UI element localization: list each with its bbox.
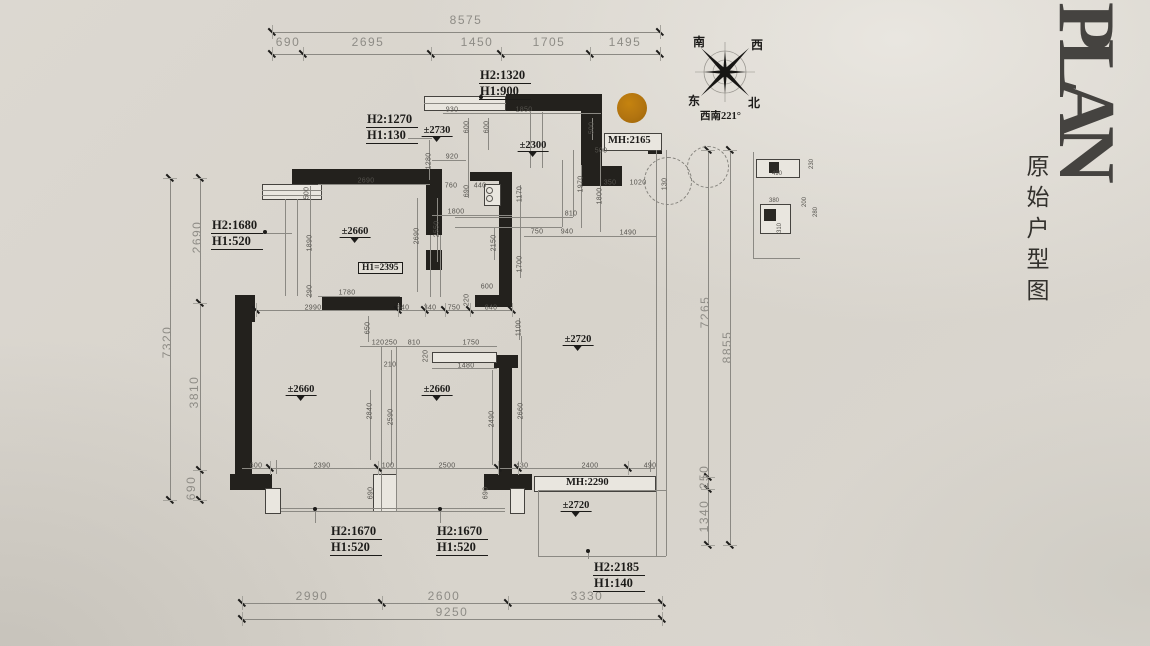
dimension-line (272, 54, 660, 55)
dimension-label: 760 (445, 183, 458, 190)
window-height-label: H2:1270H1:130 (366, 112, 418, 144)
dimension-line (272, 32, 660, 33)
leader-dot (438, 507, 442, 511)
floorplan-canvas: 8575690269514501705149526903810690732072… (0, 0, 1150, 646)
dimension-extension (242, 596, 243, 610)
height-label-h2: H2:1680 (211, 218, 263, 234)
level-mark-text: ±2720 (561, 500, 592, 512)
detail-dimension-label: 280 (813, 207, 819, 217)
dimension-label: 1970 (578, 176, 585, 193)
plan-line (562, 160, 563, 227)
level-mark-text: ±2660 (286, 384, 317, 396)
level-mark: ±2720 (561, 500, 592, 517)
detail-box-icon (764, 209, 776, 221)
dimension-extension (662, 612, 663, 626)
dimension-label: 2150 (491, 235, 498, 252)
door-height-label: MH:2290 (566, 477, 609, 488)
fixture-circle (486, 187, 493, 194)
level-triangle-icon (572, 512, 580, 517)
dimension-extension (628, 461, 629, 475)
detail-dimension-label: 490 (772, 171, 782, 177)
plan-line (521, 336, 522, 462)
level-mark: ±2660 (286, 384, 317, 401)
detail-dimension-label: 200 (802, 197, 808, 207)
dimension-extension (163, 178, 177, 179)
dimension-label: 1890 (307, 235, 314, 252)
dimension-label: 440 (474, 183, 487, 190)
dimension-label: 1100 (516, 320, 523, 336)
dimension-label: 220 (423, 350, 430, 363)
level-mark: ±2730 (422, 125, 453, 142)
dimension-extension (723, 545, 737, 546)
dimension-label: 1340 (697, 500, 711, 533)
level-triangle-icon (297, 396, 305, 401)
dimension-label: 1750 (463, 340, 480, 347)
dimension-label: 500 (589, 122, 596, 135)
dimension-line (242, 619, 662, 620)
dimension-label: 2990 (305, 305, 322, 312)
compass-label-east: 东 (688, 92, 700, 109)
dimension-label: 920 (446, 154, 459, 161)
dimension-label: 600 (484, 121, 491, 134)
window-height-label: H2:2185H1:140 (593, 560, 645, 592)
dimension-label: 7320 (160, 326, 174, 359)
dimension-label: 810 (408, 340, 421, 347)
dimension-label: 1280 (426, 153, 433, 170)
dimension-label: 690 (184, 476, 198, 501)
dimension-label: 2600 (428, 589, 461, 603)
dimension-label: 2550 (434, 221, 441, 238)
thin-wall-lines (430, 235, 441, 297)
detail-dimension-label: 310 (777, 223, 783, 233)
height-label-h1: H1:130 (366, 128, 418, 144)
dimension-label: 2490 (489, 411, 496, 428)
height-label-h1: H1:520 (211, 234, 263, 250)
dimension-label: 2695 (352, 35, 385, 49)
leader-dot (313, 507, 317, 511)
dimension-label: 1480 (458, 363, 475, 370)
door-swing-dashed (687, 146, 729, 188)
plan-line (538, 490, 539, 556)
dimension-extension (193, 470, 207, 471)
dimension-label: 600 (250, 463, 263, 470)
dimension-label: 2390 (314, 463, 331, 470)
dimension-label: 690 (276, 35, 301, 49)
level-triangle-icon (529, 152, 537, 157)
dimension-label: 600 (464, 121, 471, 134)
level-triangle-icon (433, 396, 441, 401)
dimension-extension (660, 25, 661, 39)
plan-line (262, 190, 322, 191)
plan-line (424, 103, 506, 104)
plan-line (581, 165, 582, 228)
dimension-extension (256, 303, 257, 317)
plan-line (262, 195, 322, 196)
window-height-label: H2:1670H1:520 (330, 524, 382, 556)
dimension-line (256, 310, 512, 311)
dimension-extension (303, 47, 304, 61)
window-height-label: H2:1680H1:520 (211, 218, 263, 250)
plan-line (753, 258, 800, 259)
dimension-extension (378, 461, 379, 475)
dimension-extension (512, 303, 513, 317)
dimension-label: 1490 (620, 230, 637, 237)
plan-line (538, 556, 666, 557)
wall-segment (499, 355, 512, 475)
leader-dot (263, 230, 267, 234)
dimension-label: 840 (397, 305, 410, 312)
level-mark: ±2720 (563, 334, 594, 351)
dimension-label: 500 (304, 187, 311, 200)
dimension-label: 100 (382, 463, 395, 470)
dimension-extension (445, 303, 446, 317)
dimension-label: 690 (483, 487, 490, 500)
dimension-label: 2840 (367, 403, 374, 420)
dimension-label: 1020 (630, 180, 647, 187)
height-label-h2: H2:2185 (593, 560, 645, 576)
dimension-label: 1705 (533, 35, 566, 49)
dimension-extension (590, 47, 591, 61)
dimension-label: 2590 (388, 409, 395, 426)
dimension-label: 250 (385, 340, 398, 347)
dimension-label: 1495 (609, 35, 642, 49)
dimension-extension (498, 461, 499, 475)
dimension-label: 1780 (339, 290, 356, 297)
level-mark-text: ±2660 (422, 384, 453, 396)
dimension-label: 3810 (187, 376, 201, 409)
height-label-h1: H1:900 (479, 84, 531, 100)
fixture-circle (486, 195, 493, 202)
dimension-extension (431, 47, 432, 61)
compass-label-north: 北 (748, 94, 760, 111)
boxed-height-label: H1=2395 (358, 262, 403, 274)
dimension-label: 250 (697, 465, 711, 490)
dimension-extension (723, 150, 737, 151)
floorplan-drawing: 8575690269514501705149526903810690732072… (0, 0, 1150, 646)
level-mark: ±2660 (422, 384, 453, 401)
compass-bearing-caption: 西南221° (700, 108, 741, 123)
window-or-pier (432, 352, 497, 363)
detail-dimension-label: 380 (769, 198, 779, 204)
height-label-h1: H1:520 (330, 540, 382, 556)
level-mark: ±2660 (340, 226, 371, 243)
height-label-h2: H2:1670 (436, 524, 488, 540)
dimension-extension (242, 612, 243, 626)
height-label-h1: H1:520 (436, 540, 488, 556)
level-mark-text: ±2300 (518, 140, 549, 152)
plan-line (753, 152, 754, 258)
dimension-label: 500 (595, 148, 608, 155)
dimension-label: 2660 (518, 403, 525, 420)
dimension-label: 2690 (414, 228, 421, 245)
dimension-label: 1850 (516, 107, 533, 114)
dimension-extension (660, 47, 661, 61)
plan-line (588, 552, 589, 559)
dimension-label: 2990 (296, 589, 329, 603)
level-mark-text: ±2660 (340, 226, 371, 238)
dimension-label: 350 (604, 180, 617, 187)
height-label-h2: H2:1670 (330, 524, 382, 540)
plan-line (432, 215, 512, 216)
thin-wall-lines (656, 150, 667, 556)
dimension-label: 940 (561, 229, 574, 236)
height-label-h2: H2:1320 (479, 68, 531, 84)
wall-segment (235, 300, 252, 490)
plan-line (538, 490, 666, 491)
dimension-label: 810 (565, 211, 578, 218)
dimension-extension (193, 178, 207, 179)
plan-line (417, 198, 418, 292)
plan-line (370, 390, 371, 460)
dimension-label: 840 (485, 305, 498, 312)
level-mark-text: ±2730 (422, 125, 453, 137)
dimension-extension (662, 596, 663, 610)
dimension-label: 1170 (517, 186, 524, 202)
detail-dimension-label: 230 (809, 159, 815, 169)
dimension-extension (163, 500, 177, 501)
level-mark: ±2300 (518, 140, 549, 157)
dimension-label: 690 (368, 487, 375, 500)
dimension-label: 8575 (450, 13, 483, 27)
plan-line (440, 510, 441, 523)
compass-label-south: 南 (693, 33, 705, 50)
height-label-h2: H2:1270 (366, 112, 418, 128)
window-height-label: H2:1320H1:900 (479, 68, 531, 100)
window-or-pier (510, 488, 525, 514)
dimension-line (242, 603, 662, 604)
plan-line (318, 296, 400, 297)
page-title-chinese: 原始户型图 (1018, 154, 1052, 309)
dimension-extension (382, 596, 383, 610)
plan-line (573, 150, 574, 217)
dimension-label: 600 (481, 284, 494, 291)
dimension-label: 120 (372, 340, 385, 347)
dimension-label: 750 (448, 305, 461, 312)
plan-line (455, 227, 562, 228)
window-or-pier (265, 488, 281, 514)
dimension-extension (508, 596, 509, 610)
dimension-label: 8855 (720, 331, 734, 364)
dimension-label: 650 (365, 322, 372, 335)
dimension-label: 340 (424, 305, 437, 312)
dimension-label: 130 (662, 178, 669, 191)
level-triangle-icon (574, 346, 582, 351)
dimension-label: 430 (516, 463, 529, 470)
page-title-plan: PLAN (1040, 2, 1131, 242)
dimension-label: 1700 (517, 256, 524, 273)
dimension-label: 750 (531, 229, 544, 236)
plan-line (315, 510, 316, 523)
dimension-label: 2690 (190, 221, 204, 254)
dimension-label: 1800 (448, 209, 465, 216)
dimension-label: 490 (644, 463, 657, 470)
dimension-extension (193, 303, 207, 304)
wall-segment (322, 297, 402, 311)
dimension-extension (501, 47, 502, 61)
dimension-extension (270, 461, 271, 475)
dimension-label: 930 (446, 107, 459, 114)
thin-wall-lines (285, 199, 298, 296)
dimension-extension (701, 545, 715, 546)
thin-wall-lines (381, 347, 397, 512)
door-height-label: MH:2165 (608, 135, 651, 146)
dimension-label: 690 (464, 185, 471, 198)
dimension-label: 1450 (461, 35, 494, 49)
dimension-label: 220 (464, 294, 471, 307)
dimension-extension (272, 47, 273, 61)
dimension-label: 2690 (358, 178, 375, 185)
level-triangle-icon (433, 137, 441, 142)
level-mark-text: ±2720 (563, 334, 594, 346)
window-or-pier (262, 184, 322, 200)
plan-line (455, 217, 573, 218)
leader-dot (586, 549, 590, 553)
dimension-extension (272, 25, 273, 39)
dimension-label: 9250 (436, 605, 469, 619)
compass-label-west: 西 (751, 36, 763, 53)
height-label-h1: H1:140 (593, 576, 645, 592)
dimension-label: 2500 (439, 463, 456, 470)
dimension-label: 210 (384, 362, 397, 369)
level-triangle-icon (351, 238, 359, 243)
orange-marker (617, 93, 647, 123)
dimension-label: 7265 (698, 296, 712, 329)
window-height-label: H2:1670H1:520 (436, 524, 488, 556)
dimension-label: 1800 (597, 188, 604, 205)
dimension-label: 290 (307, 285, 314, 298)
plan-line (276, 460, 277, 474)
dimension-label: 2400 (582, 463, 599, 470)
